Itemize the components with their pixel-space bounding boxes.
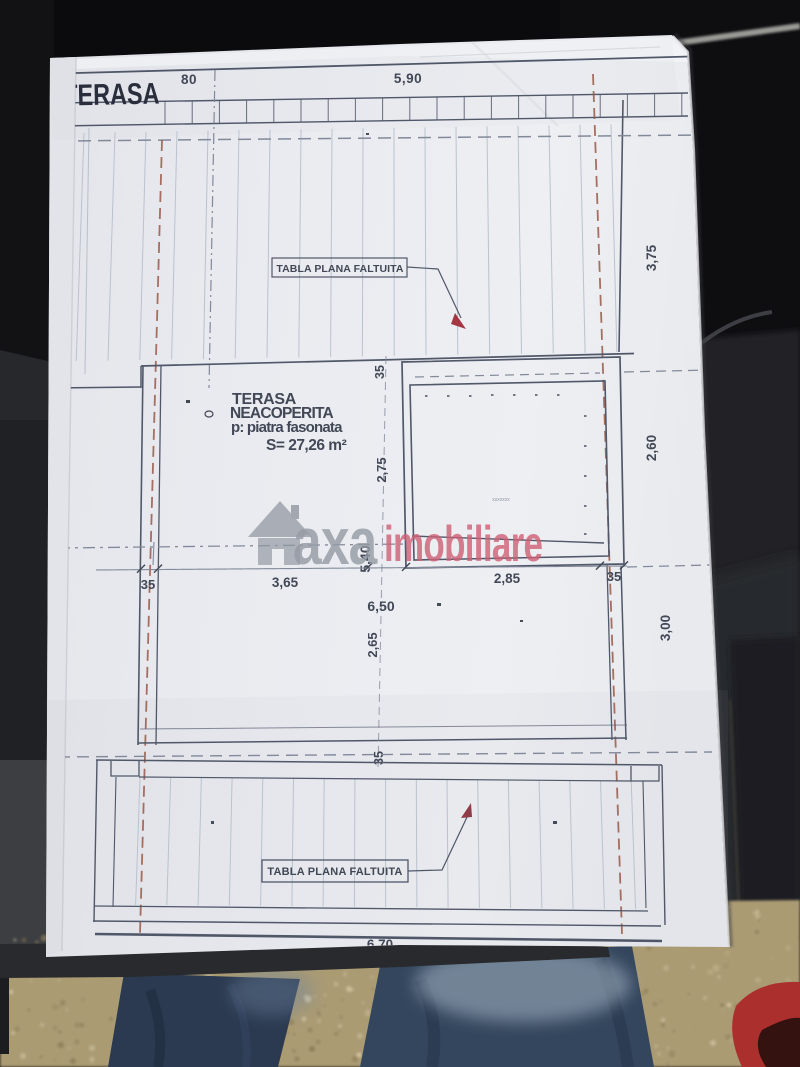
svg-text:axa: axa — [293, 504, 378, 579]
svg-text:80: 80 — [181, 72, 197, 87]
svg-text:35: 35 — [141, 577, 155, 592]
svg-text:5,90: 5,90 — [394, 71, 422, 86]
svg-text:p: piatra fasonata: p: piatra fasonata — [231, 419, 343, 436]
svg-text:S= 27,26 m²: S= 27,26 m² — [266, 437, 347, 454]
svg-text:TABLA PLANA FALTUITA: TABLA PLANA FALTUITA — [267, 866, 402, 878]
svg-text:TABLA PLANA FALTUITA: TABLA PLANA FALTUITA — [276, 263, 404, 275]
svg-text:3,75: 3,75 — [644, 244, 659, 271]
svg-text:2,65: 2,65 — [365, 632, 380, 657]
svg-text:2,75: 2,75 — [374, 457, 389, 482]
svg-text:xxxxxxx: xxxxxxx — [492, 497, 510, 503]
svg-text:35: 35 — [607, 569, 621, 584]
svg-text:TERASA: TERASA — [63, 77, 160, 112]
svg-text:6,50: 6,50 — [367, 598, 394, 614]
svg-text:imobiliare: imobiliare — [384, 517, 542, 573]
svg-text:35: 35 — [373, 365, 387, 379]
svg-text:3,00: 3,00 — [658, 615, 673, 641]
svg-text:2,85: 2,85 — [494, 571, 521, 586]
svg-text:2,60: 2,60 — [644, 435, 659, 461]
